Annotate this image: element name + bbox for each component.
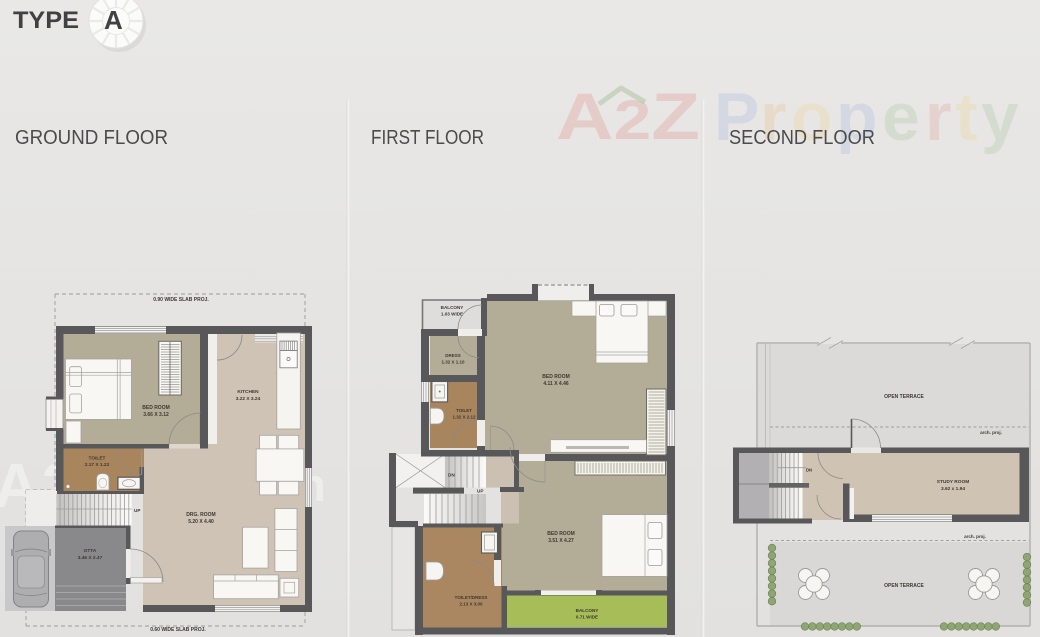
svg-text:OPEN TERRACE: OPEN TERRACE xyxy=(884,583,924,589)
svg-text:0.90 WIDE SLAB PROJ.: 0.90 WIDE SLAB PROJ. xyxy=(153,297,209,303)
svg-text:UP: UP xyxy=(477,489,483,494)
svg-text:2.17 X 1.22: 2.17 X 1.22 xyxy=(85,462,110,468)
svg-text:arch. proj.: arch. proj. xyxy=(964,534,986,539)
svg-text:STUDY ROOM: STUDY ROOM xyxy=(937,479,969,485)
svg-text:3.22 X 3.24: 3.22 X 3.24 xyxy=(236,396,261,402)
svg-text:FIRST FLOOR: FIRST FLOOR xyxy=(371,127,484,149)
svg-text:3.46 X 2.47: 3.46 X 2.47 xyxy=(78,555,103,561)
svg-text:BALCONY: BALCONY xyxy=(441,305,464,310)
svg-text:UP: UP xyxy=(134,508,140,513)
svg-text:TOILET: TOILET xyxy=(456,408,472,413)
svg-text:SECOND FLOOR: SECOND FLOOR xyxy=(729,127,875,149)
svg-text:TOILET/DRESS: TOILET/DRESS xyxy=(455,595,488,600)
svg-text:1.32 X 2.12: 1.32 X 2.12 xyxy=(452,415,476,420)
svg-text:1.32 X 1.10: 1.32 X 1.10 xyxy=(441,360,465,365)
svg-text:3.51 X 4.27: 3.51 X 4.27 xyxy=(548,538,574,544)
svg-text:GROUND FLOOR: GROUND FLOOR xyxy=(15,127,168,149)
svg-text:KITCHEN: KITCHEN xyxy=(237,389,259,395)
svg-text:arch. proj.: arch. proj. xyxy=(980,430,1002,435)
svg-text:BED ROOM: BED ROOM xyxy=(547,531,575,537)
svg-text:BED ROOM: BED ROOM xyxy=(142,405,170,411)
svg-text:TOILET: TOILET xyxy=(89,456,106,462)
svg-text:DRESS: DRESS xyxy=(445,353,461,358)
svg-text:TYPE: TYPE xyxy=(13,7,79,34)
svg-text:5.20 X 4.40: 5.20 X 4.40 xyxy=(188,519,214,525)
svg-text:DN: DN xyxy=(806,468,812,473)
svg-text:DN: DN xyxy=(448,473,455,478)
svg-text:BED ROOM: BED ROOM xyxy=(542,374,570,380)
svg-text:OTTA: OTTA xyxy=(84,548,97,554)
svg-text:DRG. ROOM: DRG. ROOM xyxy=(186,512,215,518)
svg-text:3.62 x 1.94: 3.62 x 1.94 xyxy=(941,486,965,492)
svg-text:3.66 X 3.12: 3.66 X 3.12 xyxy=(143,412,169,418)
svg-text:OPEN TERRACE: OPEN TERRACE xyxy=(884,394,924,400)
svg-text:A: A xyxy=(104,5,123,35)
svg-text:4.11 X 4.46: 4.11 X 4.46 xyxy=(543,381,569,387)
svg-text:2.13 X 3.00: 2.13 X 3.00 xyxy=(459,602,483,607)
svg-text:BALCONY: BALCONY xyxy=(576,608,599,613)
svg-text:0.60 WIDE SLAB PROJ.: 0.60 WIDE SLAB PROJ. xyxy=(150,627,206,633)
svg-text:0.71 WIDE: 0.71 WIDE xyxy=(576,615,598,620)
svg-text:1.03 WIDE: 1.03 WIDE xyxy=(441,312,463,317)
